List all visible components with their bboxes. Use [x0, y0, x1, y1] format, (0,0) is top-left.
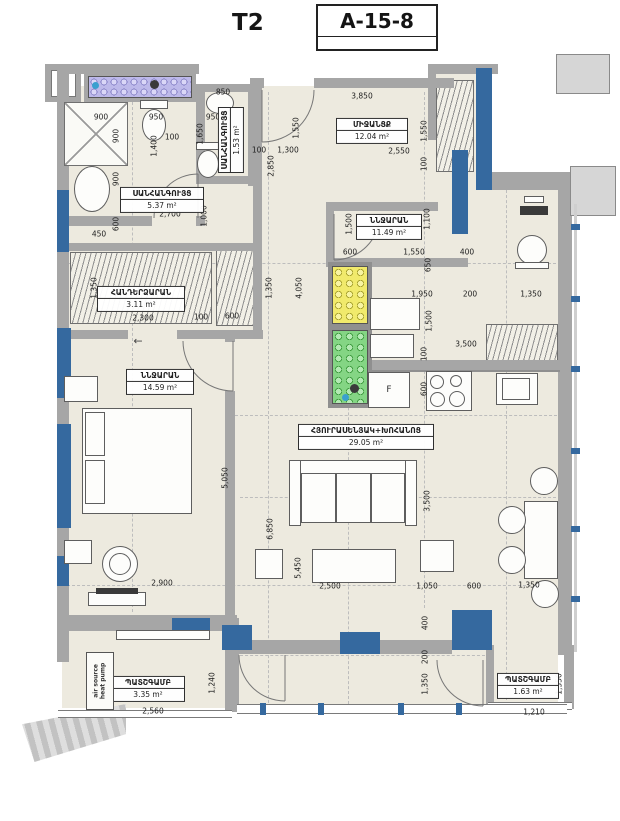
room-label: ՄԻՋԱՆՑՔ12.04 m²: [336, 118, 408, 144]
dimension-label: 1,950: [411, 290, 432, 298]
window-mullion: [260, 703, 266, 715]
room-area: 5.37 m²: [121, 200, 203, 212]
dimension-label: 2,300: [132, 314, 153, 322]
dimension-label: 1,500: [345, 213, 353, 234]
dimension-label: 600: [112, 217, 120, 231]
dimension-label: 900: [112, 129, 120, 143]
dimension-label: 900: [94, 113, 108, 121]
dimension-label: 400: [460, 248, 474, 256]
dimension-label: 100: [194, 313, 208, 321]
room-label: ՆՆՋԱՐԱՆ11.49 m²: [356, 214, 422, 240]
dimension-label: 1,550: [292, 117, 300, 138]
dimension-label: 100: [420, 157, 428, 171]
window-mullion: [318, 703, 324, 715]
dimension-label: 2,900: [151, 579, 172, 587]
dimension-label: 2,550: [388, 147, 409, 155]
dimension-label: 1,350: [265, 277, 273, 298]
heat-pump-unit: air source heat pump: [86, 652, 114, 710]
plan-type-title: T2: [232, 10, 264, 36]
dimension-label: 1,210: [523, 708, 544, 716]
dimension-label: 200: [421, 650, 429, 664]
dimension-label: 100: [420, 347, 428, 361]
dimension-label: 600: [343, 248, 357, 256]
dimension-label: 1,050: [416, 582, 437, 590]
room-area: 14.59 m²: [127, 382, 193, 394]
dimension-label: 5,050: [221, 467, 229, 488]
sliding-door-arrow: ←: [133, 335, 142, 348]
room-area: 11.49 m²: [357, 227, 421, 239]
dimension-label: 1,350: [421, 673, 429, 694]
dimension-label: 1,550: [420, 120, 428, 141]
room-area: 1.63 m²: [498, 686, 558, 698]
room-name: ՆՆՋԱՐԱՆ: [127, 370, 193, 382]
room-area: 1.53 m²: [231, 108, 243, 172]
dimension-label: 2,560: [142, 707, 163, 715]
room-name: ՀՅՈՒՐԱՍԵՆՅԱԿ+ԽՈՀԱՆՈՑ: [299, 425, 433, 437]
room-label: ՍԱՆՀԱՆԳՈՒՅՑ5.37 m²: [120, 187, 204, 213]
dimension-label: 4,050: [295, 277, 303, 298]
dimension-label: 1,300: [277, 146, 298, 154]
dimension-label: 1,500: [425, 310, 433, 331]
fridge-label: F: [386, 385, 391, 395]
dimension-label: 5,450: [294, 557, 302, 578]
window-mullion: [456, 703, 462, 715]
heat-pump-label-line2: heat pump: [99, 663, 106, 699]
dimension-label: 1,100: [423, 208, 431, 229]
dimension-label: 600: [467, 582, 481, 590]
unit-number: A-15-8: [318, 6, 436, 37]
dimension-label: 2,500: [319, 582, 340, 590]
dimension-label: 1,650: [196, 123, 204, 144]
railing-post: [571, 448, 580, 454]
dimension-label: 650: [424, 258, 432, 272]
dimension-label: 1,550: [403, 248, 424, 256]
dimension-label: 600: [420, 382, 428, 396]
railing-post: [571, 526, 580, 532]
railing-post: [571, 224, 580, 230]
dimension-label: 600: [225, 312, 239, 320]
room-label: ՀՅՈՒՐԱՍԵՆՅԱԿ+ԽՈՀԱՆՈՑ29.05 m²: [298, 424, 434, 450]
dimension-label: 3,850: [351, 92, 372, 100]
room-area: 29.05 m²: [299, 437, 433, 449]
dimension-label: 950: [149, 113, 163, 121]
unit-code-box: A-15-8: [316, 4, 438, 51]
heat-pump-label-line1: air source: [92, 664, 99, 698]
dimension-label: 1,240: [208, 672, 216, 693]
room-label: ՍԱՆՀԱՆԳՈՒՅՑ1.53 m²: [218, 107, 244, 173]
room-name: ՊԱՏՇԳԱՄԲ: [498, 674, 558, 686]
railing-post: [571, 296, 580, 302]
room-name: ՍԱՆՀԱՆԳՈՒՅՑ: [121, 188, 203, 200]
dimension-label: 100: [165, 133, 179, 141]
room-label: ՆՆՋԱՐԱՆ14.59 m²: [126, 369, 194, 395]
dimension-label: 3,500: [423, 490, 431, 511]
room-label: ՀԱՆԴԵՐՁԱՐԱՆ3.11 m²: [97, 286, 185, 312]
dimension-label: 100: [252, 146, 266, 154]
dimension-label: 850: [216, 88, 230, 96]
floor-plan: air source heat pump F ← T2 A-15-8 85090…: [0, 0, 620, 821]
railing-post: [571, 596, 580, 602]
dimension-label: 1,350: [518, 581, 539, 589]
room-area: 3.11 m²: [98, 299, 184, 311]
room-area: 12.04 m²: [337, 131, 407, 143]
dimension-label: 2,850: [267, 155, 275, 176]
dimension-label: 1,350: [520, 290, 541, 298]
room-name: ՊԱՏՇԳԱՄԲ: [112, 677, 184, 689]
window-mullion: [398, 703, 404, 715]
room-name: ՄԻՋԱՆՑՔ: [337, 119, 407, 131]
dimension-label: 400: [421, 616, 429, 630]
dimension-label: 1,400: [150, 135, 158, 156]
room-area: 3.35 m²: [112, 689, 184, 701]
dimension-label: 450: [92, 230, 106, 238]
room-name: ՀԱՆԴԵՐՁԱՐԱՆ: [98, 287, 184, 299]
railing-post: [571, 366, 580, 372]
dimension-label: 6,850: [266, 518, 274, 539]
dimension-label: 3,500: [455, 340, 476, 348]
room-label: ՊԱՏՇԳԱՄԲ3.35 m²: [111, 676, 185, 702]
dimension-label: 900: [112, 172, 120, 186]
dimension-label: 200: [463, 290, 477, 298]
room-name: ՍԱՆՀԱՆԳՈՒՅՑ: [219, 108, 231, 172]
room-name: ՆՆՋԱՐԱՆ: [357, 215, 421, 227]
room-label: ՊԱՏՇԳԱՄԲ1.63 m²: [497, 673, 559, 699]
